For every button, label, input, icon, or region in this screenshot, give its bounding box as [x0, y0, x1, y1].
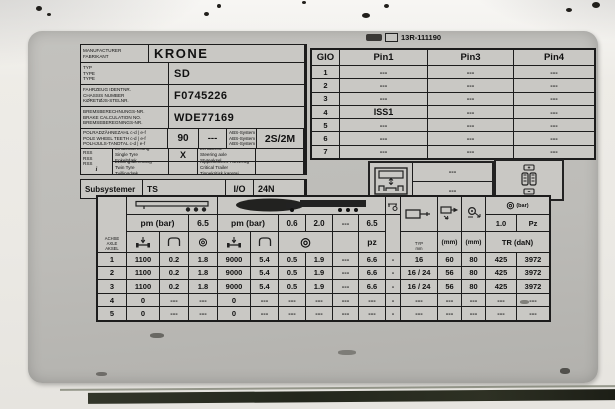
dirt-smudge — [560, 368, 570, 374]
coupling-head-icon — [386, 197, 400, 214]
gio-cell: --- — [514, 79, 594, 91]
brake-cylinder-icon — [401, 197, 437, 231]
gio-cell: --- — [428, 146, 513, 158]
brake-cell: 80 — [462, 253, 485, 266]
laden-p2: 2.0 — [306, 215, 332, 231]
brake-cell: --- — [438, 307, 461, 320]
axle-number: 4 — [98, 294, 126, 307]
brake-cell: --- — [462, 307, 485, 320]
brake-cell: --- — [251, 307, 278, 320]
brake-cell: --- — [333, 294, 358, 307]
brake-cell: 5.4 — [251, 253, 278, 266]
gio-cell: 2 — [312, 79, 339, 91]
brake-cell: --- — [486, 294, 516, 307]
brake-cell: 16 — [401, 253, 437, 266]
gio-cell: 5 — [312, 119, 339, 131]
unladen-trailer-icon — [127, 197, 217, 214]
brake-cell: 56 — [438, 267, 461, 280]
brake-cell: 0.2 — [160, 267, 188, 280]
brake-cell: 1.9 — [306, 280, 332, 293]
brake-cell: 425 — [486, 280, 516, 293]
slack-adjuster-icon — [462, 197, 485, 231]
pin3-header: Pin3 — [428, 50, 513, 65]
brake-cell: --- — [401, 294, 437, 307]
brake-pressure-table: ACHSE AXLE AKSEL — [96, 195, 551, 322]
pin1-header: Pin1 — [340, 50, 427, 65]
twin-tyre-value — [169, 162, 197, 174]
gio-cell: --- — [340, 146, 427, 158]
table-row: MANUFACTURER FABRIKANT KRONE — [81, 45, 306, 62]
brake-cell: --- — [438, 294, 461, 307]
axle-lift-diagram-icon — [370, 163, 412, 199]
brake-cell: --- — [251, 294, 278, 307]
brake-drum-icon: ◎ — [189, 232, 217, 252]
brake-cell: 3972 — [517, 253, 549, 266]
axle-load-icon — [218, 232, 250, 252]
brake-cell: 1100 — [127, 253, 159, 266]
type-label: TYP TYPE TYPE — [81, 63, 168, 84]
brake-cell: - — [386, 294, 400, 307]
brake-table-header: ACHSE AXLE AKSEL — [98, 197, 549, 252]
brake-cell: --- — [333, 280, 358, 293]
cylinder-type-label: TYP mm — [401, 232, 437, 252]
gio-cell: --- — [514, 93, 594, 105]
brake-cell: --- — [517, 307, 549, 320]
brake-cell: 6.6 — [359, 280, 385, 293]
unladen-pm-label: pm (bar) — [127, 215, 188, 231]
axle-number: 1 — [98, 253, 126, 266]
brake-cell: --- — [160, 307, 188, 320]
critical-trailer-value — [256, 162, 303, 174]
gio-cell-iss1: ISS1 — [340, 106, 427, 118]
rss-row: RSS RSS RSS i Einfachbereifung Single Ty… — [81, 149, 306, 174]
gio-cell: --- — [428, 93, 513, 105]
single-tyre-label: Einfachbereifung Single Tyre Enkeltdæk — [113, 149, 168, 161]
axle-load-icon — [127, 232, 159, 252]
pole-wheel-label: POLRADZÄHNEZAHL c-d | e-f POLE WHEEL TEE… — [81, 129, 167, 148]
chassis-number-value: F0745226 — [169, 85, 304, 106]
type-value: SD — [169, 63, 304, 84]
brake-cell: --- — [359, 307, 385, 320]
brake-cell: --- — [359, 294, 385, 307]
table-row: FAHRZEUG IDENTNR. CHASSIS NUMBER KØRETØJ… — [81, 85, 306, 106]
laden-p4: 6.5 — [359, 215, 385, 231]
brake-cell: 425 — [486, 267, 516, 280]
pin4-header: Pin4 — [514, 50, 594, 65]
gio-cell: 1 — [312, 66, 339, 78]
axle-number: 5 — [98, 307, 126, 320]
dirt-speck — [47, 13, 51, 16]
brake-cell: 1.8 — [189, 267, 217, 280]
brake-cell: 3972 — [517, 280, 549, 293]
gio-cell: --- — [340, 93, 427, 105]
axle-number: 2 — [98, 267, 126, 280]
axle-column-header: ACHSE AXLE AKSEL — [98, 197, 126, 252]
brake-cell: 425 — [486, 253, 516, 266]
single-tyre-value: X — [169, 149, 197, 161]
brake-cell: 1.8 — [189, 253, 217, 266]
dirt-smudge — [96, 372, 107, 376]
gio-cell: --- — [428, 106, 513, 118]
brake-cell: --- — [189, 294, 217, 307]
approval-number: 13R-111190 — [401, 33, 441, 42]
pole-wheel-teeth-2: --- — [199, 129, 226, 148]
retention-pz: Pz — [517, 215, 549, 231]
brake-cell: 0 — [127, 294, 159, 307]
gio-cell: --- — [340, 132, 427, 144]
manufacturer-value: KRONE — [149, 45, 304, 62]
brake-cell: 5.4 — [251, 280, 278, 293]
brake-cell: --- — [401, 307, 437, 320]
retention-pressure-header: ◎ (bar) — [486, 197, 549, 214]
brake-cell: - — [386, 253, 400, 266]
brake-cell: --- — [333, 253, 358, 266]
brake-cell: 80 — [462, 267, 485, 280]
gio-header: GIO — [312, 50, 339, 65]
laden-truck-icon — [218, 197, 385, 214]
vehicle-info-table: MANUFACTURER FABRIKANT KRONE TYP TYPE TY… — [80, 44, 307, 175]
brake-calculation-label: BREMSBERECHNUNGS-NR. BRAKE CALCULATION N… — [81, 107, 168, 128]
gio-cell: --- — [428, 66, 513, 78]
dirt-smudge — [150, 333, 164, 338]
brake-cell: 1.8 — [189, 280, 217, 293]
tr-label: TR (daN) — [486, 232, 549, 252]
photo-of-trailer-data-plate: 13R-111190 MANUFACTURER FABRIKANT KRONE … — [0, 0, 615, 409]
twin-tyre-label: Zwillingsbereifung Twin Tyre Tvillingdæk — [113, 162, 168, 174]
gio-pin-table: GIO Pin1 Pin3 Pin4 1 --- --- --- 2 --- -… — [310, 48, 596, 160]
info-icon: i — [96, 167, 98, 173]
brake-cell: - — [386, 280, 400, 293]
brake-cell: --- — [189, 307, 217, 320]
gio-cell: --- — [340, 119, 427, 131]
laden-pm-label: pm (bar) — [218, 215, 278, 231]
dirt-smudge — [338, 350, 356, 355]
blank-cell — [386, 215, 400, 252]
brake-cell: 56 — [438, 280, 461, 293]
brake-cell: 0.5 — [279, 280, 305, 293]
gio-cell: 3 — [312, 93, 339, 105]
approval-mark-icon — [385, 33, 398, 42]
brake-cell: - — [386, 307, 400, 320]
gio-cell: --- — [514, 146, 594, 158]
brake-cell: 9000 — [218, 253, 250, 266]
gio-cell: --- — [514, 119, 594, 131]
dirt-smudge — [366, 34, 382, 41]
table-row: POLRADZÄHNEZAHL c-d | e-f POLE WHEEL TEE… — [81, 129, 306, 148]
brake-cell: 9000 — [218, 267, 250, 280]
dirt-smudge — [520, 300, 529, 304]
gio-cell: 7 — [312, 146, 339, 158]
steering-axle-value — [256, 149, 303, 161]
brake-drum-icon: ◎ — [506, 200, 514, 211]
abs-system-label: ABS-System ABS-System ABS-System — [227, 129, 256, 148]
gio-cell: --- — [428, 119, 513, 131]
gio-cell: --- — [340, 79, 427, 91]
dirt-speck — [592, 2, 600, 8]
gio-cell: --- — [428, 132, 513, 144]
brake-cell: - — [386, 267, 400, 280]
gio-cell: --- — [340, 66, 427, 78]
pole-wheel-teeth: 90 — [168, 129, 198, 148]
lift-axle-control-icon — [517, 164, 541, 196]
gio-cell: --- — [514, 106, 594, 118]
brake-cell: --- — [160, 294, 188, 307]
brake-cell: --- — [462, 294, 485, 307]
brake-table-rows: 1 1100 0.2 1.8 9000 5.4 0.5 1.9 --- 6.6 … — [98, 253, 549, 320]
brake-cell: 60 — [438, 253, 461, 266]
brake-cell: --- — [333, 267, 358, 280]
gio-cell: --- — [428, 79, 513, 91]
brake-cell: 3972 — [517, 267, 549, 280]
critical-trailer-label: Kippkritisches Fahrzeug Critical Trailer… — [198, 162, 255, 174]
brake-calculation-value: WDE77169 — [169, 107, 304, 128]
brake-cell: 1100 — [127, 267, 159, 280]
laden-pz-label: pz — [359, 232, 385, 252]
brake-cell: --- — [486, 307, 516, 320]
brake-cell: 1100 — [127, 280, 159, 293]
brake-cell: --- — [306, 294, 332, 307]
dirt-speck — [566, 8, 572, 12]
dirt-speck — [36, 6, 42, 11]
manufacturer-label: MANUFACTURER FABRIKANT — [81, 45, 148, 62]
brake-cell: --- — [333, 307, 358, 320]
brake-cell: 0 — [218, 294, 250, 307]
brake-cell: 6.6 — [359, 267, 385, 280]
gio-cell: 4 — [312, 106, 339, 118]
dirt-speck — [302, 1, 306, 4]
retention-p: 1.0 — [486, 215, 516, 231]
table-row: TYP TYPE TYPE SD — [81, 63, 306, 84]
mm-label: (mm) — [438, 232, 461, 252]
laden-p3: --- — [333, 215, 358, 231]
gio-cell: --- — [514, 132, 594, 144]
air-suspension-icon — [251, 232, 278, 252]
brake-cell: --- — [279, 294, 305, 307]
axle-number: 3 — [98, 280, 126, 293]
brake-cell: 0.2 — [160, 280, 188, 293]
krone-data-plate: 13R-111190 MANUFACTURER FABRIKANT KRONE … — [28, 31, 598, 383]
brake-cell: 0 — [127, 307, 159, 320]
brake-cell: 1.9 — [306, 267, 332, 280]
laden-p1: 0.6 — [279, 215, 305, 231]
brake-cell: 0.5 — [279, 253, 305, 266]
brake-cell: 0.5 — [279, 267, 305, 280]
brake-cell: 80 — [462, 280, 485, 293]
axle-lift-value: --- — [413, 163, 492, 181]
brake-cell: --- — [279, 307, 305, 320]
gio-cell: --- — [514, 66, 594, 78]
blank-cell — [333, 232, 358, 252]
approval-mark: 13R-111190 — [366, 33, 441, 42]
gio-cell: 6 — [312, 132, 339, 144]
air-suspension-icon — [160, 232, 188, 252]
brake-cell: 0.2 — [160, 253, 188, 266]
brake-cell: 16 / 24 — [401, 267, 437, 280]
brake-cell: 9000 — [218, 280, 250, 293]
mm-label: (mm) — [462, 232, 485, 252]
brake-cell: 6.6 — [359, 253, 385, 266]
brake-cell: 1.9 — [306, 253, 332, 266]
chassis-number-label: FAHRZEUG IDENTNR. CHASSIS NUMBER KØRETØJ… — [81, 85, 168, 106]
brake-cell: 16 / 24 — [401, 280, 437, 293]
brake-cell: --- — [306, 307, 332, 320]
brake-cell: 0 — [218, 307, 250, 320]
dirt-speck — [362, 13, 370, 18]
abs-configuration-value: 2S/2M — [257, 129, 303, 148]
dirt-speck — [217, 4, 221, 8]
dirt-speck — [384, 4, 389, 8]
unladen-limit: 6.5 — [189, 215, 217, 231]
table-row: BREMSBERECHNUNGS-NR. BRAKE CALCULATION N… — [81, 107, 306, 128]
rss-marks: RSS RSS RSS i — [81, 149, 112, 174]
dirt-speck — [204, 12, 209, 16]
steering-axle-label: Lenkachse Steering axle Styreaksel — [198, 149, 255, 161]
brake-drum-icon: ◎ — [279, 232, 332, 252]
brake-stroke-icon — [438, 197, 461, 231]
brake-cell: 5.4 — [251, 267, 278, 280]
